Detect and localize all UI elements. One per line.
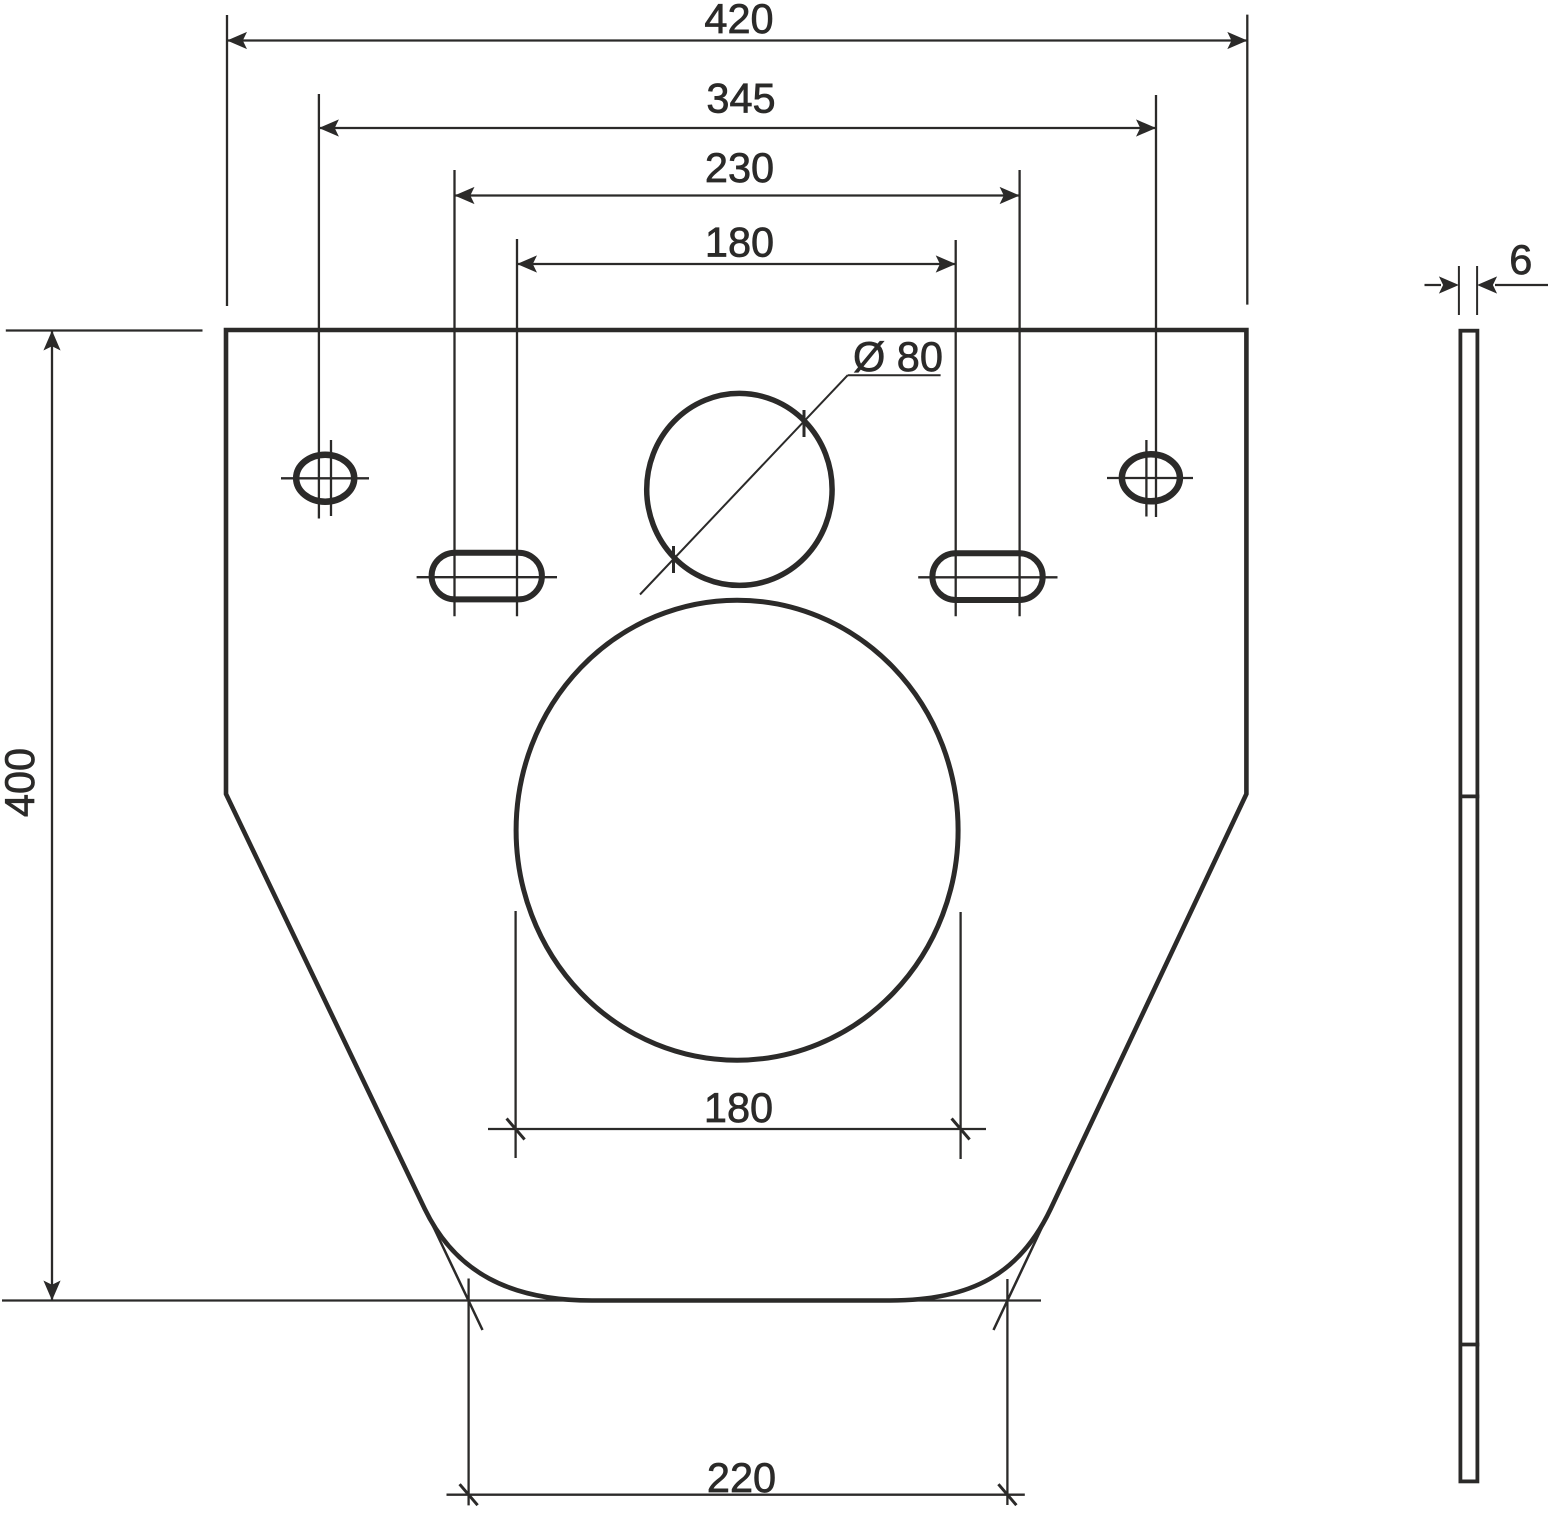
svg-text:420: 420 xyxy=(704,0,773,42)
svg-text:230: 230 xyxy=(705,144,774,191)
svg-text:400: 400 xyxy=(0,748,43,817)
svg-text:220: 220 xyxy=(707,1454,776,1501)
svg-text:180: 180 xyxy=(704,1084,773,1131)
svg-text:6: 6 xyxy=(1509,236,1532,283)
svg-text:180: 180 xyxy=(705,219,774,266)
svg-text:Ø 80: Ø 80 xyxy=(853,333,943,380)
svg-text:345: 345 xyxy=(706,75,775,122)
